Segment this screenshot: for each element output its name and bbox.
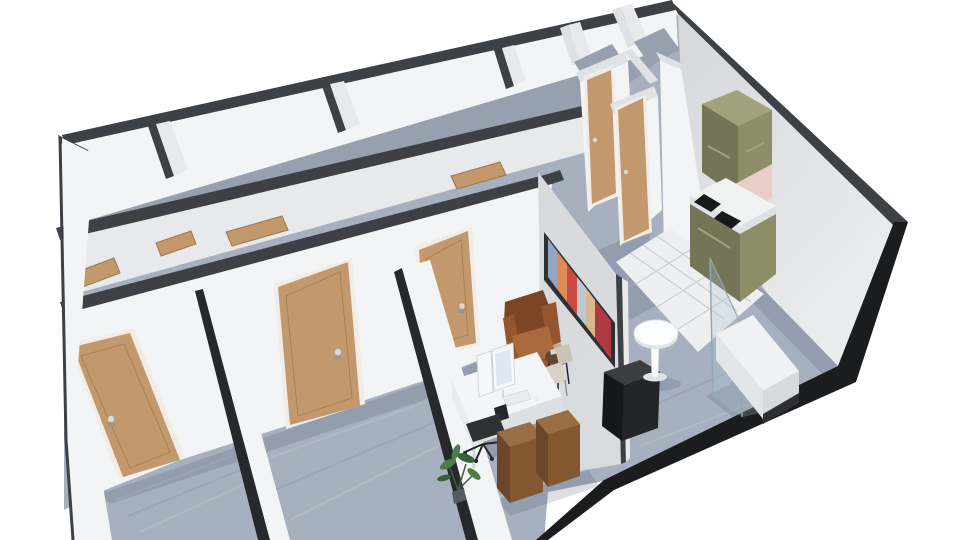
mouse (535, 397, 540, 402)
floorplan-viewport: 3D isometric floor plan render of an off… (0, 0, 960, 540)
door-room-2 (274, 258, 365, 429)
door-hallway-b (615, 95, 652, 244)
floorplan-3d-render: 3D isometric floor plan render of an off… (0, 0, 960, 540)
door-hallway-a (584, 65, 619, 208)
door-handle (624, 170, 628, 174)
reception-counter (602, 360, 660, 441)
door-handle (593, 138, 597, 142)
